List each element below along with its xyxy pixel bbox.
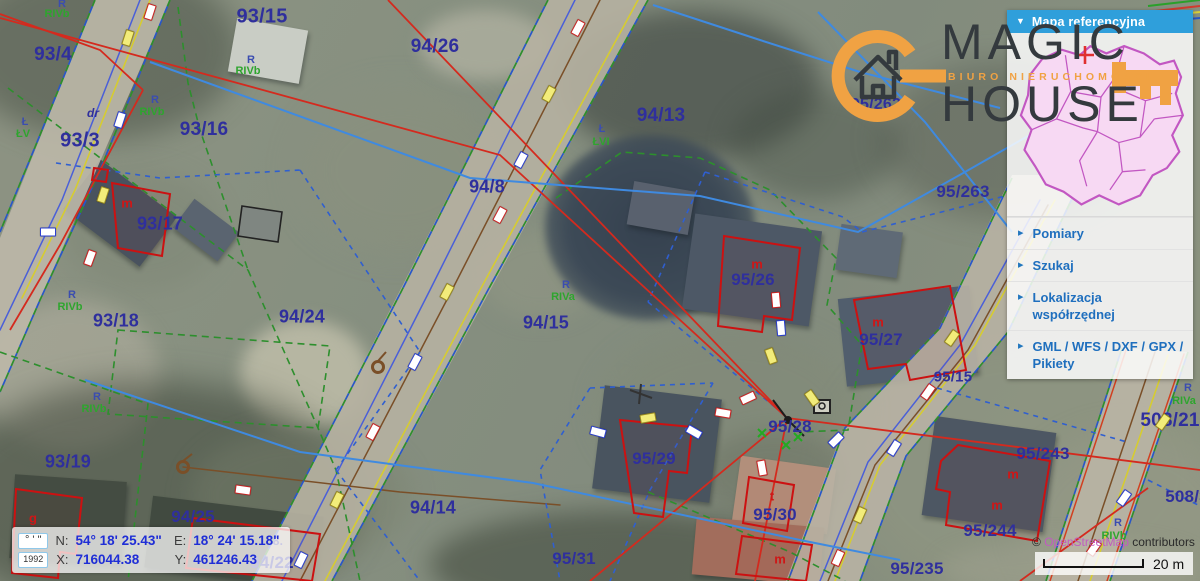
- utility-tag: [570, 19, 585, 37]
- coord-label: X:: [52, 552, 68, 567]
- utility-tag: [121, 29, 135, 47]
- coord-value: 18° 24' 15.18": [190, 533, 284, 548]
- utility-tag: [920, 383, 937, 401]
- utility-tag: [886, 439, 902, 457]
- panel-header-mapa-referencyjna[interactable]: ▼ Mapa referencyjna: [1007, 10, 1193, 33]
- utility-tag: [492, 206, 507, 224]
- panel-menu-item[interactable]: ▸ Lokalizacja współrzędnej: [1007, 281, 1193, 330]
- coord-label: N:: [52, 533, 68, 548]
- menu-item-label: Pomiary: [1033, 225, 1084, 242]
- map-viewport[interactable]: 93/493/1594/2693/393/1694/1394/895/26295…: [0, 0, 1200, 581]
- panel-header-label: Mapa referencyjna: [1032, 15, 1145, 29]
- chevron-right-icon: ▸: [1018, 257, 1024, 274]
- utility-tag: [831, 549, 846, 567]
- utility-tag: [96, 186, 110, 204]
- utility-tag: [714, 407, 731, 419]
- scale-bar-label: 20 m: [1153, 556, 1184, 572]
- utility-tag: [293, 551, 308, 569]
- coord-value: 54° 18' 25.43": [72, 533, 166, 548]
- chevron-down-icon: ▼: [1016, 17, 1025, 26]
- utility-tag: [739, 391, 757, 406]
- copyright-symbol: ©: [1032, 535, 1044, 549]
- utility-tag: [83, 249, 97, 267]
- panel-menu-item[interactable]: ▸ Szukaj: [1007, 249, 1193, 281]
- utility-tag: [756, 459, 768, 476]
- poland-map-graphic: [1007, 33, 1193, 216]
- utility-tag: [1155, 413, 1172, 431]
- utility-tag: [40, 228, 56, 237]
- coord-value: 461246.43: [190, 552, 284, 567]
- chevron-right-icon: ▸: [1018, 225, 1024, 242]
- utility-tag: [439, 283, 454, 301]
- panel-menu-item[interactable]: ▸ GML / WFS / DXF / GPX / Pikiety: [1007, 330, 1193, 379]
- utility-tag: [685, 424, 703, 440]
- coordinates-row: ° ' " N: 54° 18' 25.43" E: 18° 24' 15.18…: [18, 531, 284, 550]
- utility-tag: [541, 85, 556, 103]
- map-attribution: © OpenStreetMap contributors: [1032, 535, 1195, 549]
- utility-tag: [776, 320, 786, 337]
- utility-tag: [513, 151, 528, 169]
- menu-item-label: Lokalizacja współrzędnej: [1033, 289, 1187, 323]
- utility-tag: [589, 426, 607, 439]
- coords-format-button[interactable]: 1992: [18, 552, 48, 568]
- poland-reference-minimap[interactable]: [1007, 33, 1193, 216]
- coord-label: Y:: [170, 552, 186, 567]
- attribution-text: contributors: [1129, 535, 1195, 549]
- utility-tag: [143, 3, 157, 21]
- tools-panel: ▼ Mapa referencyjna: [1007, 10, 1193, 379]
- utility-tag: [944, 329, 961, 347]
- chevron-right-icon: ▸: [1018, 289, 1024, 306]
- utility-tag: [639, 412, 656, 424]
- scale-bar: 20 m: [1035, 552, 1193, 575]
- scale-bar-line: [1043, 559, 1144, 568]
- coord-label: E:: [170, 533, 186, 548]
- utility-tag: [764, 347, 778, 365]
- utility-tag: [365, 423, 380, 441]
- chevron-right-icon: ▸: [1018, 338, 1024, 355]
- openstreetmap-link[interactable]: OpenStreetMap: [1044, 535, 1129, 549]
- utility-tag: [804, 389, 821, 407]
- utility-tag: [771, 292, 781, 309]
- coordinates-row: 1992 X: 716044.38 Y: 461246.43: [18, 550, 284, 569]
- menu-item-label: GML / WFS / DXF / GPX / Pikiety: [1033, 338, 1187, 372]
- panel-menu: ▸ Pomiary ▸ Szukaj ▸ Lokalizacja współrz…: [1007, 216, 1193, 379]
- coord-value: 716044.38: [72, 552, 166, 567]
- utility-tag: [113, 111, 127, 129]
- utility-tag: [853, 506, 868, 524]
- utility-tag: [234, 484, 251, 495]
- utility-tag: [329, 491, 344, 509]
- coords-format-button[interactable]: ° ' ": [18, 533, 48, 549]
- utility-tag: [407, 353, 422, 371]
- utility-tag: [827, 431, 845, 449]
- utility-tag: [1116, 489, 1133, 507]
- coordinates-panel: ° ' " N: 54° 18' 25.43" E: 18° 24' 15.18…: [12, 527, 290, 573]
- panel-menu-item[interactable]: ▸ Pomiary: [1007, 217, 1193, 249]
- menu-item-label: Szukaj: [1033, 257, 1074, 274]
